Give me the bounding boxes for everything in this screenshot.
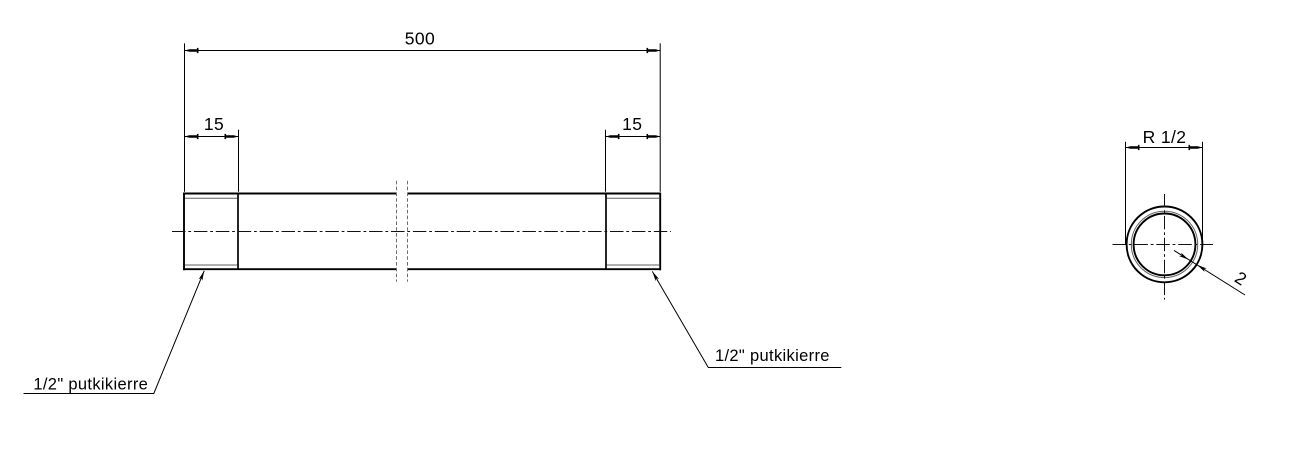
- svg-text:R 1/2: R 1/2: [1143, 127, 1187, 147]
- svg-text:15: 15: [622, 114, 642, 134]
- svg-text:500: 500: [405, 28, 435, 48]
- svg-text:15: 15: [204, 114, 224, 134]
- svg-text:1/2" putkikierre: 1/2" putkikierre: [33, 375, 148, 393]
- svg-text:1/2" putkikierre: 1/2" putkikierre: [715, 347, 830, 365]
